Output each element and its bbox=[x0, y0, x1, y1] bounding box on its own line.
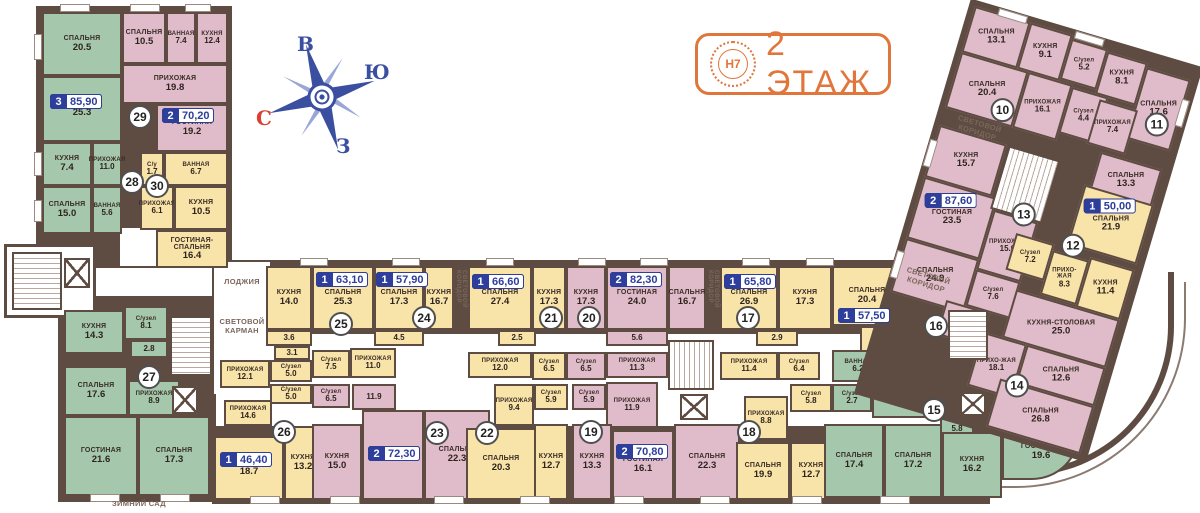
room: СПАЛЬНЯ20.5 bbox=[42, 12, 122, 76]
staircase bbox=[12, 252, 62, 310]
room: ВАННАЯ6.7 bbox=[164, 152, 228, 186]
elevator bbox=[680, 394, 708, 420]
room: ГОСТИНАЯ21.6 bbox=[64, 416, 138, 496]
room: ПРИХОЖАЯ11.0 bbox=[92, 142, 122, 186]
room: С/узел5.9 bbox=[534, 384, 568, 410]
room: 4.5 bbox=[374, 330, 424, 346]
window bbox=[520, 496, 550, 504]
apartment-area-badge: 287,60 bbox=[925, 193, 977, 208]
room: С/узел6.5 bbox=[566, 352, 606, 380]
room: ПРИХОЖАЯ11.0 bbox=[350, 348, 396, 378]
apartment-number: 14 bbox=[1005, 374, 1029, 398]
room: С/узел5.9 bbox=[572, 384, 606, 410]
apartment-area-badge: 282,30 bbox=[610, 272, 662, 287]
room: 3.6 bbox=[266, 330, 312, 346]
room: 3.1 bbox=[274, 346, 310, 360]
apartment-number: 15 bbox=[922, 398, 946, 422]
compass-letter-z: З bbox=[336, 134, 350, 158]
room: ВАННАЯ5.6 bbox=[92, 186, 122, 234]
apartment-area-badge: 272,30 bbox=[368, 446, 420, 461]
apartment-number: 19 bbox=[579, 420, 603, 444]
apartment-number: 24 bbox=[412, 306, 436, 330]
room: КУХНЯ17.3 bbox=[778, 266, 832, 330]
apartment-number: 20 bbox=[577, 306, 601, 330]
window bbox=[330, 496, 360, 504]
h7-logo-icon: Н7 bbox=[710, 41, 756, 87]
light-pocket-label: СВЕТОВОЙ КАРМАН bbox=[214, 318, 270, 335]
window bbox=[60, 4, 90, 12]
room: ГОСТИНАЯ25.3 bbox=[42, 76, 122, 142]
floor-title: 2 ЭТАЖ bbox=[766, 25, 876, 103]
compass-rose bbox=[255, 30, 390, 165]
window bbox=[700, 496, 730, 504]
apartment-number: 18 bbox=[737, 420, 761, 444]
apartment-number: 22 bbox=[475, 421, 499, 445]
room: 11.9 bbox=[352, 384, 396, 410]
room: ПРИХОЖАЯ14.6 bbox=[224, 400, 272, 426]
apartment-number: 16 bbox=[924, 314, 948, 338]
window bbox=[614, 496, 644, 504]
room: СПАЛЬНЯ17.4 bbox=[824, 424, 884, 498]
window bbox=[185, 4, 211, 12]
apartment-area-badge: 150,00 bbox=[1084, 198, 1136, 213]
room: СПАЛЬНЯ18.7 bbox=[214, 436, 284, 500]
apartment-number: 21 bbox=[539, 306, 563, 330]
window bbox=[250, 496, 280, 504]
compass-letter-yu: Ю bbox=[364, 60, 390, 84]
room: СПАЛЬНЯ17.6 bbox=[64, 366, 128, 416]
room: КУХНЯ14.3 bbox=[64, 310, 124, 354]
room: С/узел7.5 bbox=[312, 350, 350, 378]
room: С/узел8.1 bbox=[124, 306, 168, 340]
window bbox=[34, 34, 42, 60]
apartment-area-badge: 157,90 bbox=[376, 272, 428, 287]
room: КУХНЯ15.0 bbox=[312, 424, 362, 500]
room: С/узел5.0 bbox=[270, 360, 312, 382]
room: СПАЛЬНЯ15.0 bbox=[42, 186, 92, 234]
room: СПАЛЬНЯ19.9 bbox=[736, 442, 790, 500]
room: С/узел5.8 bbox=[790, 384, 832, 412]
apartment-area-badge: 385,90 bbox=[50, 94, 102, 109]
winter-garden-label: ЗИМНИЙ САД bbox=[64, 500, 214, 509]
floor-title-box: Н7 2 ЭТАЖ bbox=[695, 33, 891, 95]
room: ПРИХОЖАЯ19.8 bbox=[122, 64, 228, 104]
window bbox=[130, 4, 160, 12]
staircase bbox=[948, 310, 988, 360]
window bbox=[34, 152, 42, 176]
room: КУХНЯ10.5 bbox=[174, 186, 228, 230]
light-corridor-label: СВЕТОВОЙ КОРИДОР bbox=[455, 270, 467, 332]
compass-letter-s: С bbox=[256, 106, 272, 130]
room: ПРИХОЖАЯ11.9 bbox=[606, 382, 658, 428]
room: С/узел5.0 bbox=[270, 384, 312, 404]
window bbox=[640, 258, 668, 266]
room: СПАЛЬНЯ16.7 bbox=[668, 266, 706, 330]
apartment-area-badge: 146,40 bbox=[220, 452, 272, 467]
apartment-number: 11 bbox=[1145, 113, 1169, 137]
apartment-number: 29 bbox=[128, 105, 152, 129]
room: КУХНЯ16.2 bbox=[942, 432, 1002, 498]
room: ПРИХОЖАЯ12.0 bbox=[468, 352, 532, 378]
room: 2.9 bbox=[756, 330, 798, 346]
room: КУХНЯ7.4 bbox=[42, 142, 92, 186]
apartment-number: 10 bbox=[991, 98, 1015, 122]
floor-plan: В Ю З С Н7 2 ЭТАЖ СПАЛЬНЯ20.5 ГОСТИНАЯ25… bbox=[0, 0, 1200, 513]
compass-letter-v: В bbox=[297, 32, 314, 56]
apartment-area-badge: 165,80 bbox=[724, 274, 776, 289]
room: 2.5 bbox=[498, 330, 536, 346]
left-block-pocket bbox=[120, 228, 156, 266]
elevator bbox=[172, 386, 198, 414]
room: ПРИХОЖАЯ12.1 bbox=[220, 360, 270, 388]
window bbox=[880, 496, 910, 504]
room: С/узел6.5 bbox=[312, 384, 350, 408]
window bbox=[486, 258, 514, 266]
window bbox=[434, 496, 464, 504]
apartment-number: 17 bbox=[736, 306, 760, 330]
apartment-area-badge: 270,80 bbox=[616, 444, 668, 459]
window bbox=[34, 200, 42, 222]
room: СПАЛЬНЯ22.3 bbox=[674, 424, 740, 500]
room: СПАЛЬНЯ10.5 bbox=[122, 12, 166, 64]
apartment-number: 28 bbox=[120, 170, 144, 194]
room: КУХНЯ12.7 bbox=[534, 424, 568, 500]
room: С/узел6.5 bbox=[532, 352, 566, 380]
apartment-area-badge: 166,60 bbox=[472, 274, 524, 289]
room: 5.6 bbox=[606, 330, 668, 346]
window bbox=[742, 258, 770, 266]
light-corridor-label: СВЕТОВОЙ КОРИДОР bbox=[707, 270, 719, 332]
apartment-area-badge: 270,20 bbox=[162, 108, 214, 123]
apartment-number: 27 bbox=[137, 365, 161, 389]
apartment-area-badge: 163,10 bbox=[316, 272, 368, 287]
room: КУХНЯ12.4 bbox=[196, 12, 228, 64]
room: СПАЛЬНЯ17.2 bbox=[884, 424, 942, 498]
room: ПРИХОЖАЯ11.4 bbox=[720, 352, 778, 380]
room: ВАННАЯ7.4 bbox=[166, 12, 196, 64]
staircase bbox=[170, 316, 212, 376]
apartment-number: 25 bbox=[329, 312, 353, 336]
window bbox=[300, 258, 328, 266]
window bbox=[792, 496, 822, 504]
room: С/узел6.4 bbox=[778, 352, 820, 380]
window bbox=[392, 258, 420, 266]
room: 2.8 bbox=[130, 340, 168, 358]
apartment-number: 13 bbox=[1012, 202, 1036, 226]
apartment-area-badge: 157,50 bbox=[838, 308, 890, 323]
apartment-number: 23 bbox=[425, 421, 449, 445]
room: СПАЛЬНЯ17.3 bbox=[138, 416, 210, 496]
apartment-number: 12 bbox=[1061, 234, 1085, 258]
room: КУХНЯ14.0 bbox=[266, 266, 312, 330]
elevator bbox=[960, 392, 986, 416]
window bbox=[806, 258, 834, 266]
apartment-number: 30 bbox=[145, 174, 169, 198]
apartment-number: 26 bbox=[272, 420, 296, 444]
room: ГОСТИНАЯ-СПАЛЬНЯ16.4 bbox=[156, 230, 228, 268]
room: ПРИХОЖАЯ11.3 bbox=[606, 352, 668, 378]
room: ПРИХОЖАЯ9.4 bbox=[494, 384, 534, 426]
window bbox=[578, 258, 606, 266]
loggia-label: ЛОДЖИЯ bbox=[216, 278, 268, 287]
elevator bbox=[64, 258, 90, 288]
staircase bbox=[668, 340, 714, 390]
room: ГОСТИНАЯ16.1 bbox=[612, 430, 674, 500]
